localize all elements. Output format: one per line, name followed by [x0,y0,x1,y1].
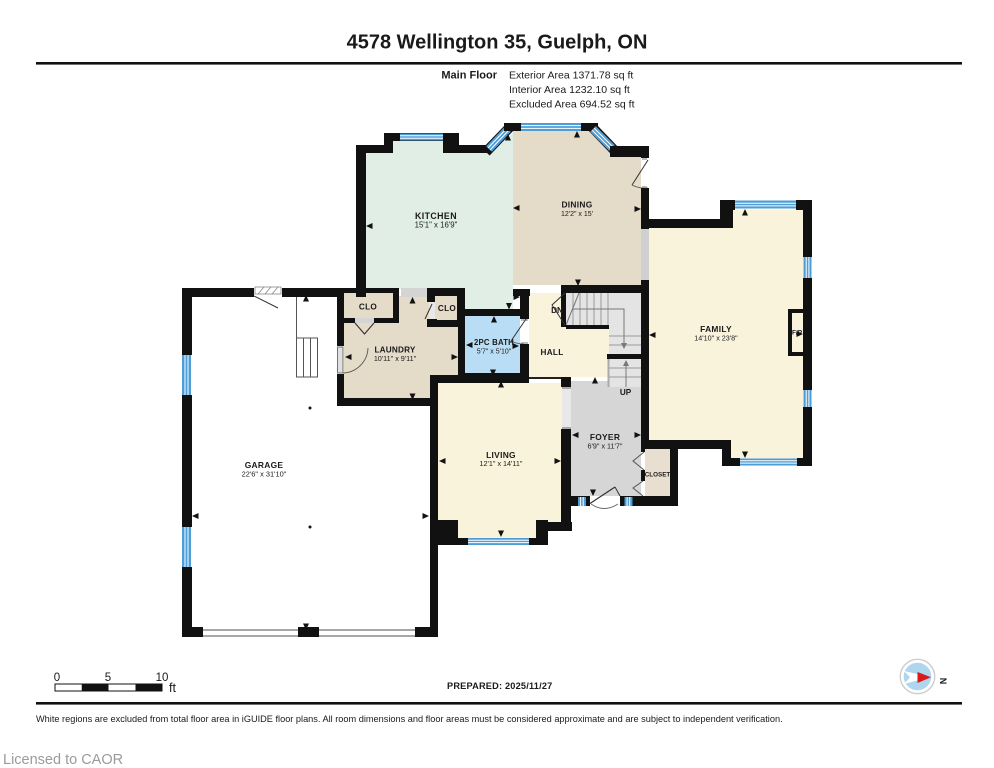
svg-text:DINING: DINING [561,200,592,210]
svg-text:15'1" x 16'9": 15'1" x 16'9" [415,221,458,230]
svg-text:14'10" x 23'8": 14'10" x 23'8" [694,334,738,343]
svg-text:Interior Area 1232.10 sq ft: Interior Area 1232.10 sq ft [509,84,630,96]
svg-text:Main Floor: Main Floor [441,70,497,82]
svg-text:6'9" x 11'7": 6'9" x 11'7" [588,442,623,451]
svg-text:KITCHEN: KITCHEN [415,211,457,221]
svg-text:FOYER: FOYER [590,432,620,442]
svg-text:GARAGE: GARAGE [245,460,284,470]
svg-text:PREPARED: 2025/11/27: PREPARED: 2025/11/27 [447,681,552,691]
svg-text:White regions are excluded fro: White regions are excluded from total fl… [36,714,783,724]
svg-text:4578 Wellington 35, Guelph, ON: 4578 Wellington 35, Guelph, ON [347,32,648,54]
svg-text:HALL: HALL [540,348,563,357]
svg-text:UP: UP [620,388,632,397]
svg-text:10: 10 [156,672,169,684]
svg-text:12'1" x 14'11": 12'1" x 14'11" [480,459,523,468]
svg-text:CLOSET: CLOSET [645,472,671,479]
svg-text:Excluded Area 694.52 sq ft: Excluded Area 694.52 sq ft [509,99,635,111]
svg-text:FAMILY: FAMILY [700,324,732,334]
svg-text:5: 5 [105,672,111,684]
svg-text:ft: ft [169,681,176,695]
svg-text:CLO: CLO [438,304,457,313]
svg-text:12'2" x 15': 12'2" x 15' [561,211,593,218]
svg-text:22'6" x 31'10": 22'6" x 31'10" [242,470,287,479]
svg-text:DN: DN [551,306,563,315]
svg-text:CLO: CLO [359,303,378,312]
svg-text:5'7" x 5'10": 5'7" x 5'10" [477,349,512,356]
svg-text:Licensed to CAOR: Licensed to CAOR [3,752,123,768]
svg-text:0: 0 [54,672,60,684]
svg-text:10'11" x 9'11": 10'11" x 9'11" [374,354,417,363]
svg-text:N: N [938,678,948,685]
svg-text:2PC BATH: 2PC BATH [474,338,514,347]
svg-text:Exterior Area 1371.78 sq ft: Exterior Area 1371.78 sq ft [509,70,633,82]
